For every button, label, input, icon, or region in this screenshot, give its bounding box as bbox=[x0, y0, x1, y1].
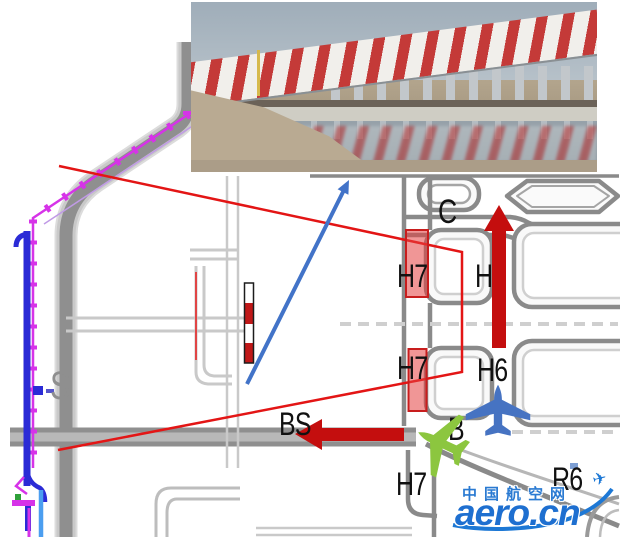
label-taxiway-bs: BS bbox=[279, 408, 311, 440]
blue-pointer-arrow bbox=[247, 180, 349, 384]
blue-airplane-icon bbox=[466, 385, 531, 436]
airport-closure-chart: C H7 H6 H7 H6 B BS H7 R6 S ✈ 中国 bbox=[0, 0, 620, 537]
watermark-domain: aero.cn bbox=[455, 492, 580, 534]
annotation-overlay bbox=[0, 0, 620, 537]
watermark: ✈ 中国航空网 aero.cn bbox=[448, 468, 620, 537]
red-left-arrow bbox=[295, 419, 404, 450]
closure-marker-board bbox=[245, 283, 254, 363]
watermark-plane-icon: ✈ bbox=[590, 468, 608, 490]
red-up-arrow bbox=[484, 205, 514, 348]
